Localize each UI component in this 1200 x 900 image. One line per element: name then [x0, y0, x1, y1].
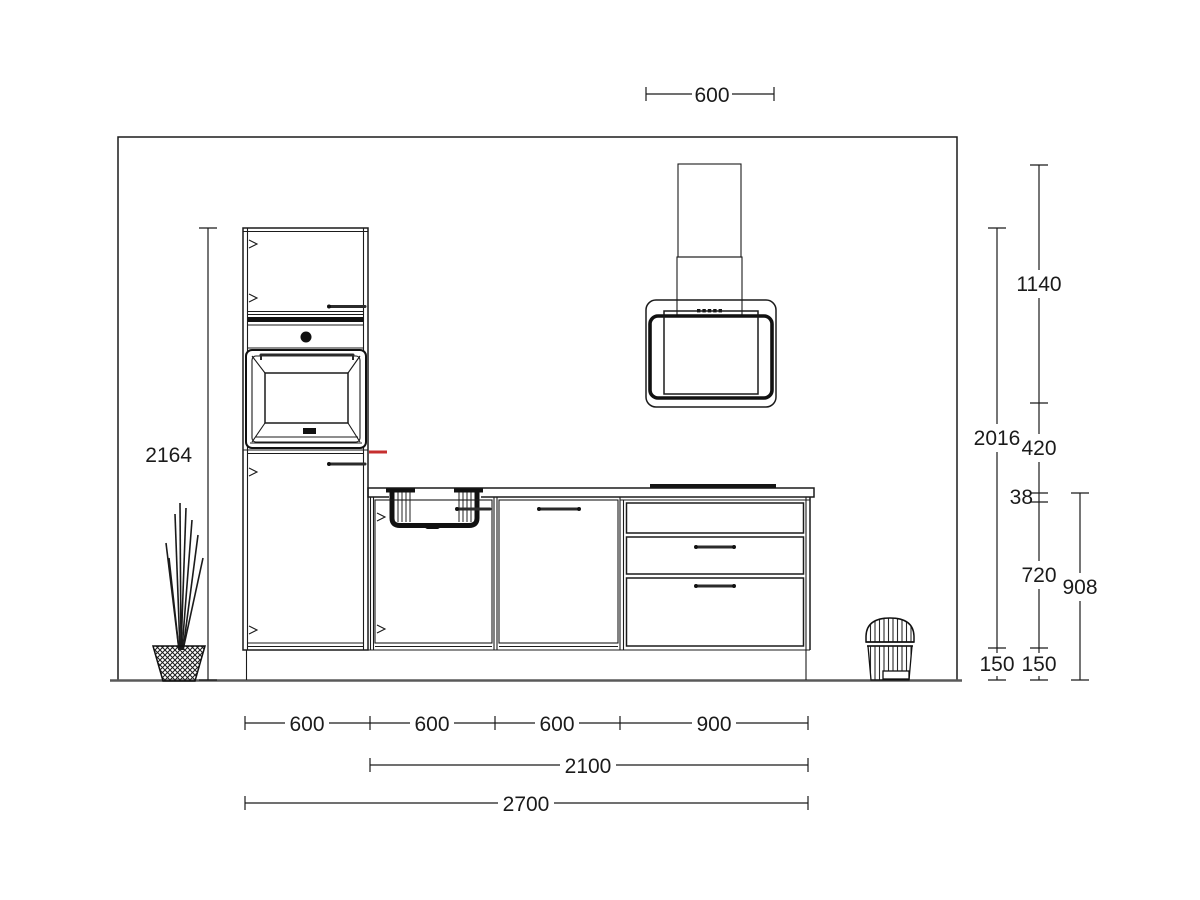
dim-label-worktop-thickness: 38	[1010, 486, 1033, 509]
sink-drain	[425, 524, 440, 529]
dim-label-carcass-height: 720	[1021, 564, 1056, 587]
chimney-duct	[677, 164, 742, 315]
pedal-bin	[866, 618, 914, 680]
door-handle	[327, 305, 365, 309]
plant	[153, 503, 205, 681]
range-hood	[646, 300, 776, 407]
door-handle	[537, 507, 581, 511]
dim-label-hood-clearance: 420	[1021, 437, 1056, 460]
door-base-unit	[494, 497, 618, 650]
dim-label-worktop-height: 908	[1062, 576, 1097, 599]
dim-label-total-width: 2700	[503, 793, 550, 816]
drawer-front-top	[627, 503, 804, 533]
hood-frame	[650, 316, 772, 398]
dim-label-unit2: 600	[414, 713, 449, 736]
dim-label-unit3: 600	[539, 713, 574, 736]
dim-label-unit1: 600	[289, 713, 324, 736]
hinge-icon	[249, 626, 257, 634]
bin-pedal	[883, 671, 909, 679]
tall-unit-lower-door	[248, 454, 366, 647]
tall-unit-upper-door	[248, 240, 366, 315]
oven-knob	[301, 332, 312, 343]
wall-lines	[118, 137, 957, 680]
plinth	[243, 650, 810, 680]
plant-reeds	[166, 503, 203, 650]
drawer-handle	[694, 545, 736, 549]
hinge-icon	[249, 240, 257, 248]
hinge-icon	[377, 513, 385, 521]
dim-label-hood-width: 600	[694, 84, 729, 107]
dim-label-chimney-height: 1140	[1016, 273, 1061, 296]
oven-vent	[303, 428, 316, 434]
hinge-icon	[249, 468, 257, 476]
plant-vase	[153, 646, 205, 681]
dimension-total-height	[199, 228, 217, 680]
tall-oven-unit	[243, 228, 387, 650]
dim-label-tall-unit-height: 2016	[974, 427, 1021, 450]
oven	[243, 325, 368, 450]
drawer-base-unit	[620, 497, 810, 650]
room-outline	[110, 137, 962, 681]
cooktop	[650, 484, 776, 489]
drawer-front-bottom	[627, 578, 804, 646]
drawer-front-middle	[627, 537, 804, 574]
drawer-handle	[694, 584, 736, 588]
base-unit-door	[499, 500, 618, 643]
dim-label-total-height: 2164	[145, 444, 192, 467]
shelf-band	[248, 317, 364, 322]
bin-lid	[866, 618, 914, 642]
hinge-icon	[249, 294, 257, 302]
hinge-icon	[377, 625, 385, 633]
dim-label-plinth-right: 150	[1021, 653, 1056, 676]
kitchen-elevation-drawing: 600 2164 2016 150 1140 420 38 720 150	[0, 0, 1200, 900]
dim-label-plinth-left: 150	[979, 653, 1014, 676]
door-handle	[327, 462, 365, 466]
door-handle	[455, 507, 490, 511]
hood-glass-panel	[664, 311, 758, 394]
dim-label-run-width: 2100	[565, 755, 612, 778]
dim-label-unit4: 900	[696, 713, 731, 736]
